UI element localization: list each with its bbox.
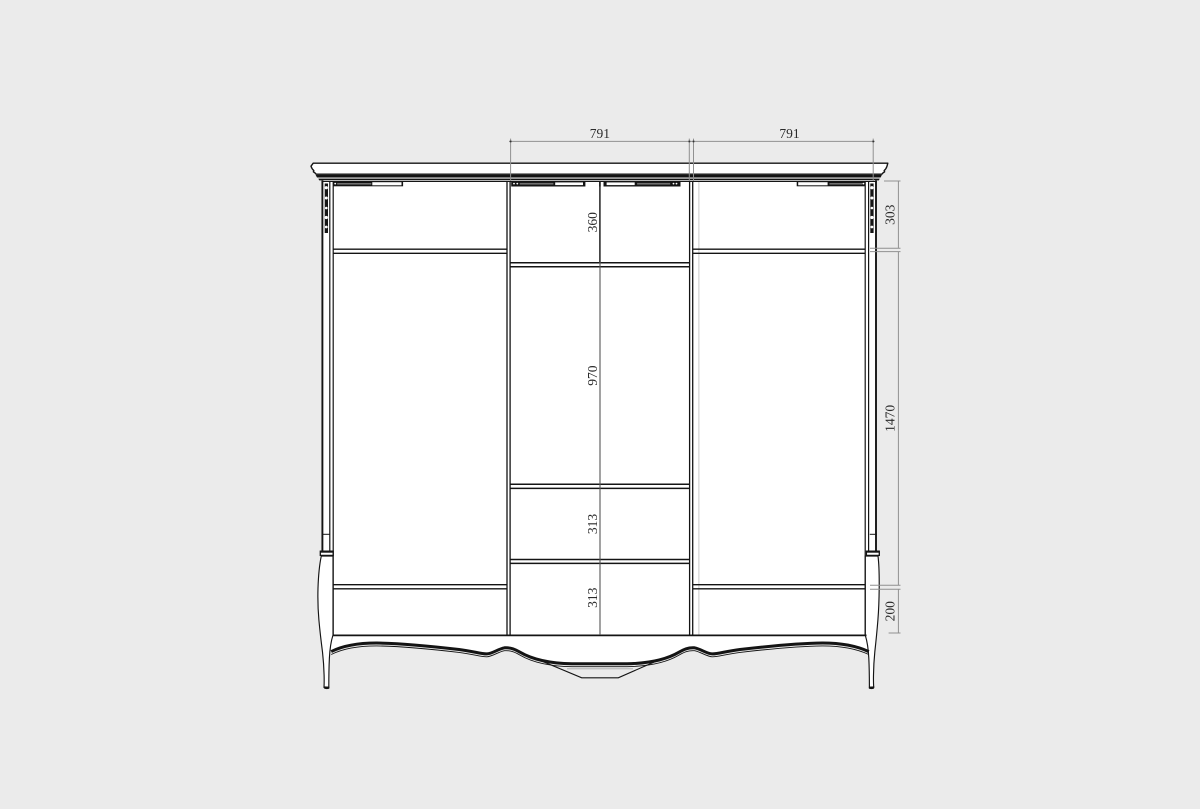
svg-text:1470: 1470: [883, 405, 898, 432]
svg-text:313: 313: [585, 587, 600, 608]
svg-text:313: 313: [585, 514, 600, 535]
svg-text:970: 970: [585, 365, 600, 386]
svg-text:791: 791: [779, 126, 799, 141]
svg-text:303: 303: [883, 204, 898, 225]
svg-text:791: 791: [590, 126, 610, 141]
svg-text:360: 360: [585, 212, 600, 233]
svg-text:200: 200: [883, 601, 898, 622]
